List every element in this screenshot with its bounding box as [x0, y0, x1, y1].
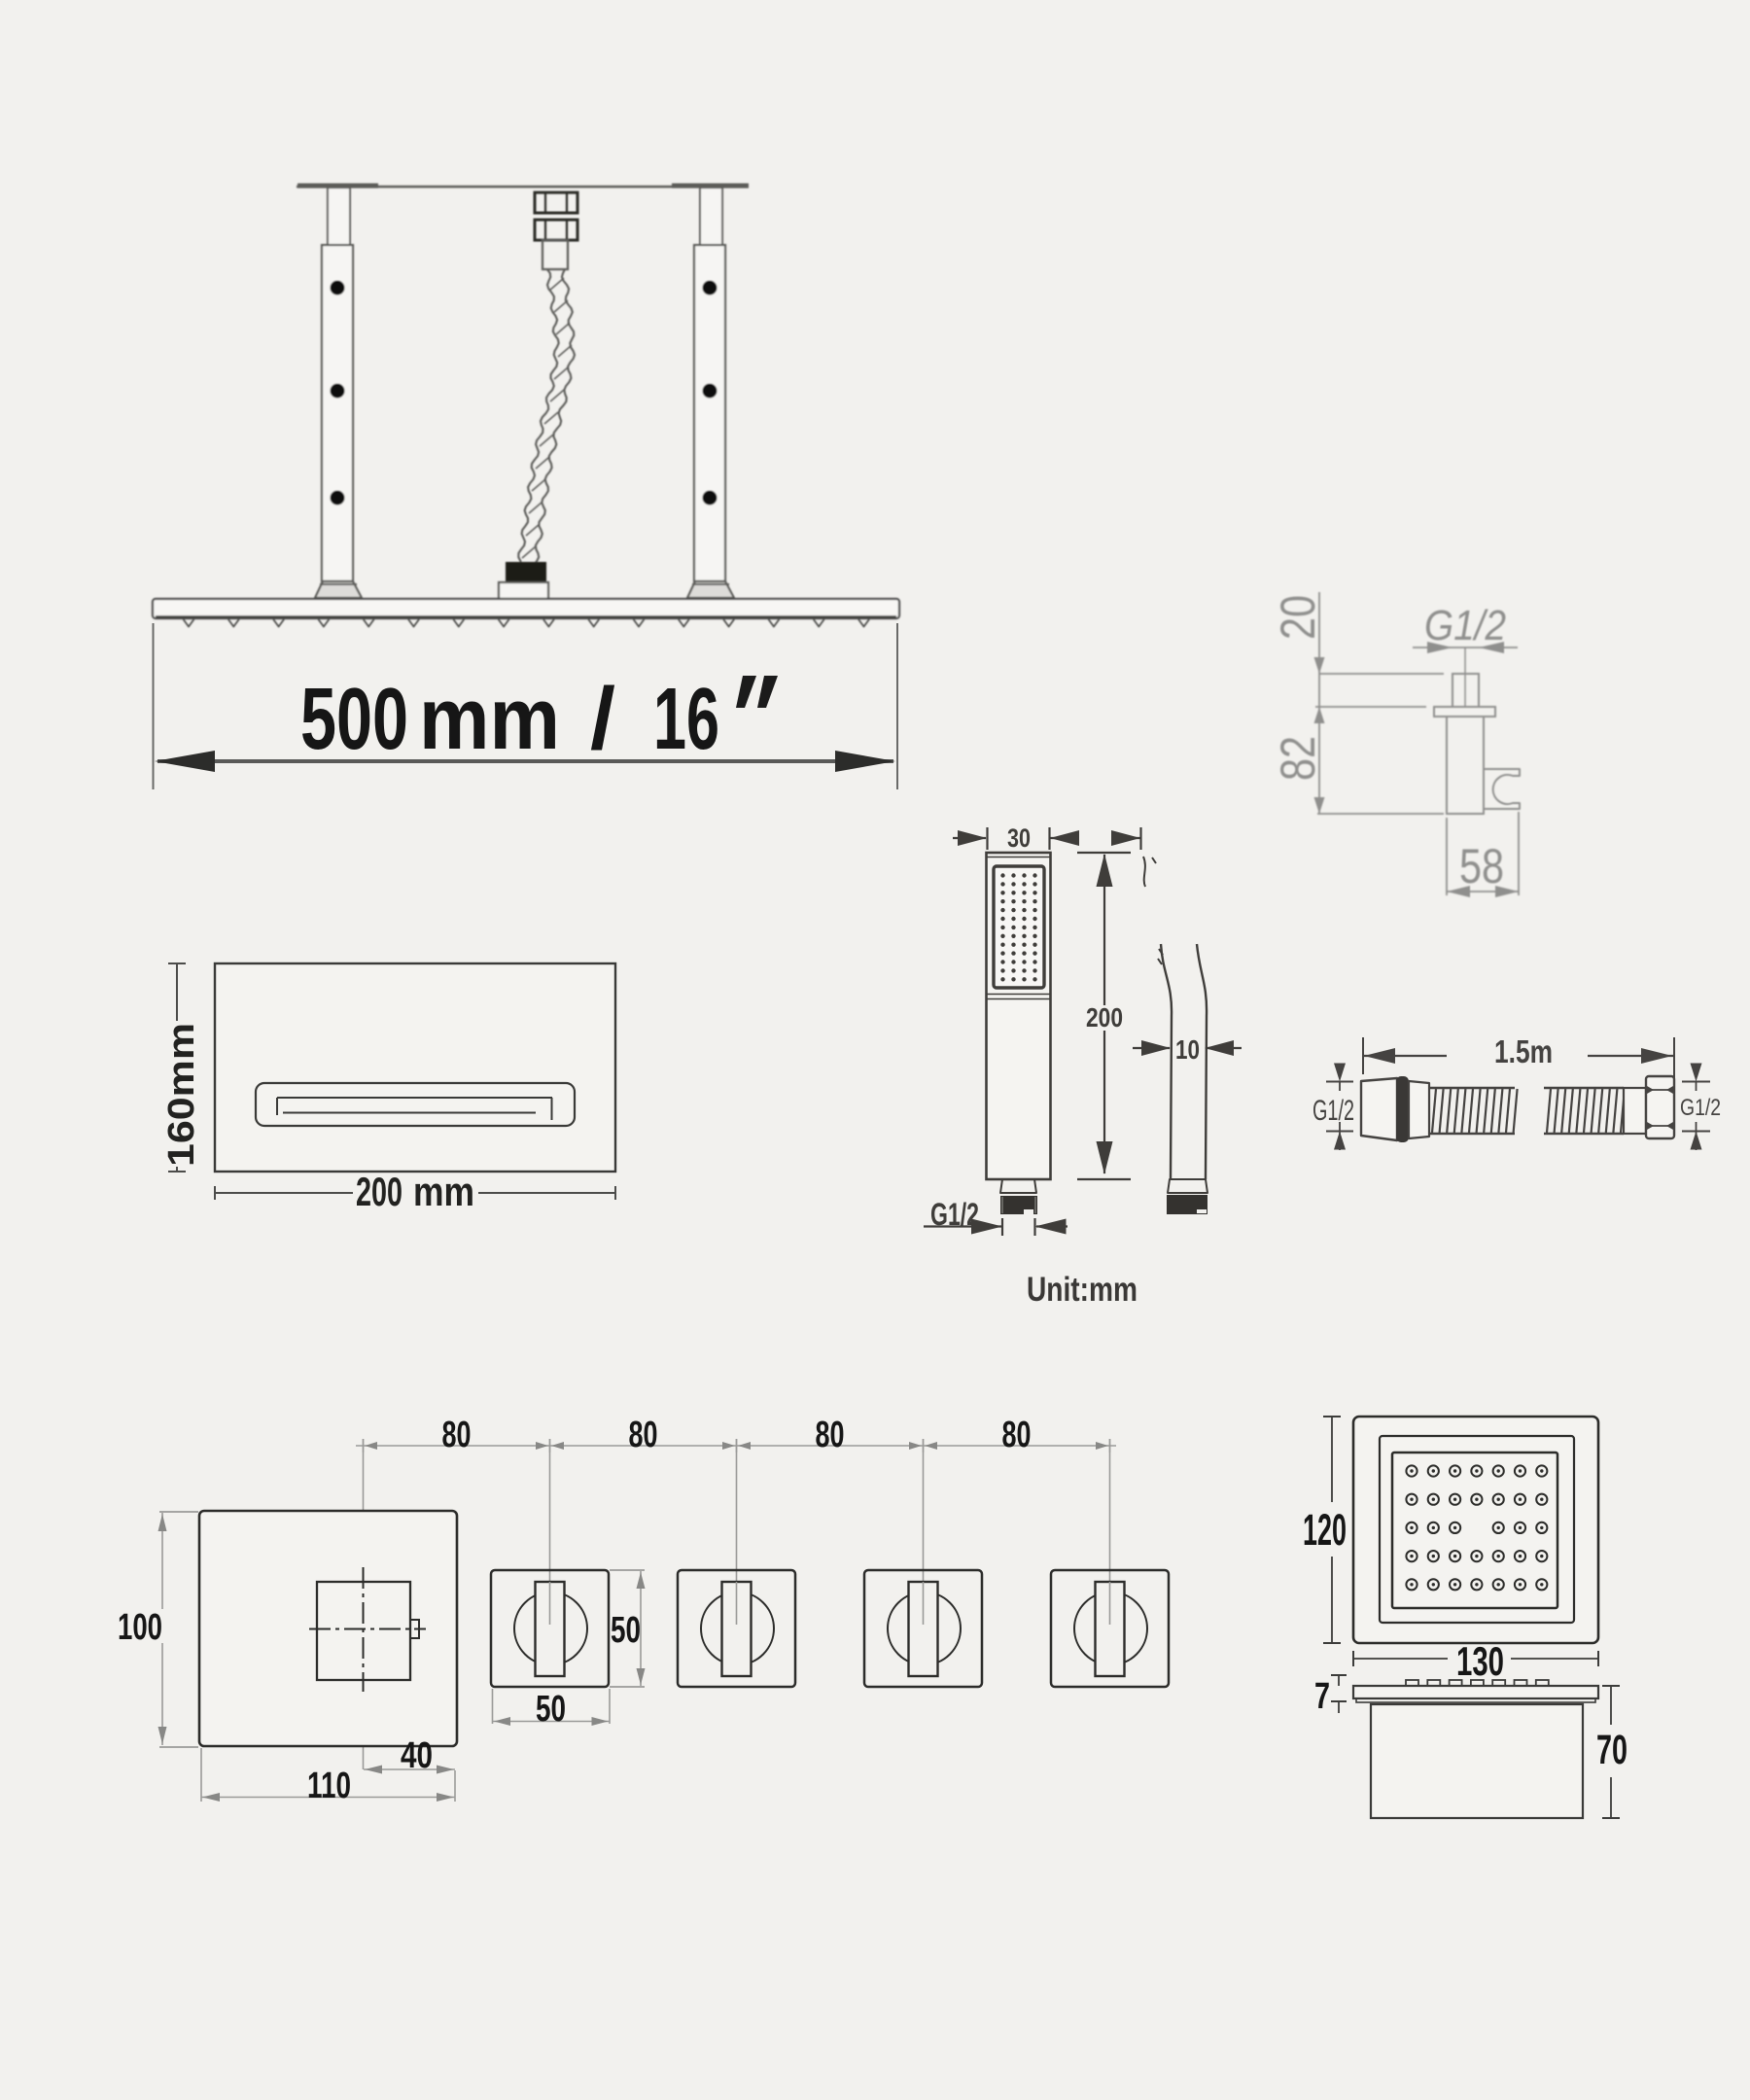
svg-text:mm: mm [413, 1169, 474, 1214]
svg-text:500: 500 [300, 671, 408, 768]
svg-text:16: 16 [653, 671, 719, 768]
svg-text:200: 200 [356, 1169, 402, 1214]
svg-text:100: 100 [118, 1607, 162, 1648]
svg-text:20: 20 [1271, 595, 1325, 640]
svg-text:Unit:mm: Unit:mm [1027, 1271, 1137, 1309]
svg-text:160mm: 160mm [161, 1023, 202, 1167]
svg-text:80: 80 [1002, 1415, 1032, 1455]
svg-text:50: 50 [611, 1610, 641, 1651]
svg-text:130: 130 [1456, 1638, 1504, 1684]
svg-text:40: 40 [401, 1735, 433, 1776]
svg-text:80: 80 [442, 1415, 472, 1455]
svg-text:58: 58 [1459, 839, 1504, 893]
svg-text:mm: mm [419, 671, 560, 768]
svg-text:70: 70 [1596, 1727, 1627, 1773]
svg-text:30: 30 [1007, 823, 1031, 853]
svg-text:200: 200 [1086, 1002, 1123, 1032]
svg-text:1.5m: 1.5m [1494, 1033, 1553, 1069]
svg-text:7: 7 [1314, 1676, 1330, 1717]
svg-text:80: 80 [816, 1415, 845, 1455]
svg-text:82: 82 [1271, 736, 1325, 781]
svg-text:G1/2: G1/2 [1312, 1095, 1354, 1127]
svg-text:80: 80 [629, 1415, 658, 1455]
svg-text:50: 50 [536, 1689, 566, 1730]
svg-text:G1/2: G1/2 [1680, 1095, 1721, 1121]
svg-text:/: / [590, 671, 615, 768]
svg-text:120: 120 [1303, 1505, 1347, 1555]
svg-text:G1/2: G1/2 [1424, 602, 1506, 649]
svg-text:10: 10 [1175, 1034, 1200, 1065]
svg-text:110: 110 [307, 1766, 351, 1806]
